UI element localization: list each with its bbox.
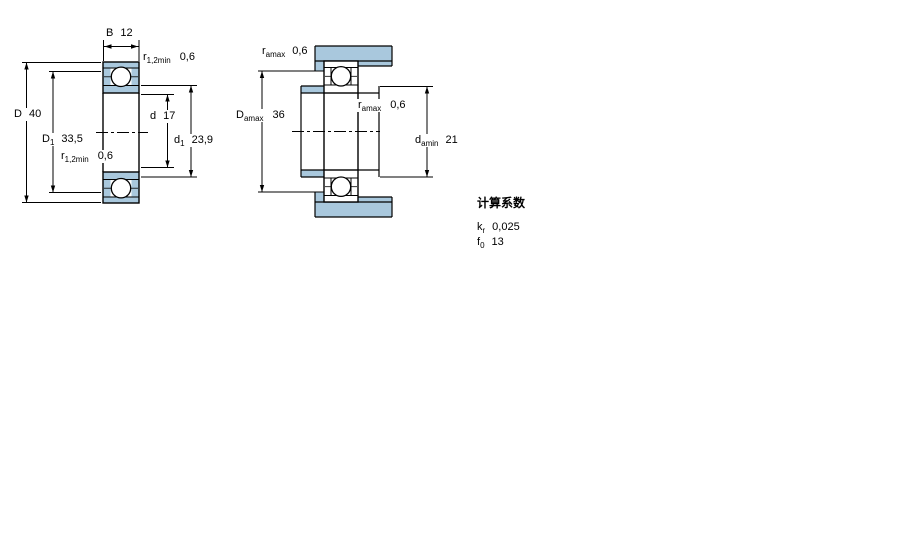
dim-label-housing-abutment-Damax: Damax36: [234, 109, 287, 122]
calculation-factors-title: 计算系数: [477, 194, 525, 211]
ball-top: [331, 67, 350, 86]
dim-value: 0,6: [390, 99, 405, 111]
factor-subscript: 0: [480, 241, 484, 250]
dim-value: 36: [273, 109, 285, 121]
dim-value: 0,6: [98, 150, 113, 162]
dim-subscript: 1: [50, 138, 54, 147]
dim-value: 33,5: [61, 133, 82, 145]
factor-value: 13: [492, 236, 504, 248]
factor-f0: f013: [477, 235, 525, 250]
bearing-cross-section: [96, 62, 148, 203]
dim-label-shaft-abutment-damin: damin21: [413, 134, 460, 147]
factor-value: 0,025: [492, 221, 520, 233]
dim-subscript: amax: [362, 104, 382, 113]
dim-value: 21: [445, 134, 457, 146]
dim-label-r12min-top: r1,2min0,6: [141, 51, 197, 64]
dim-subscript: 1,2min: [65, 155, 89, 164]
technical-drawing-linework: [0, 0, 900, 560]
dim-subscript: amax: [244, 114, 264, 123]
factor-symbol: k: [477, 221, 483, 233]
dim-label-recess-diameter-D1: D133,5: [40, 133, 85, 146]
dim-label-outer-diameter-D: D40: [12, 108, 43, 121]
dim-value: 17: [163, 110, 175, 122]
ball-bottom: [111, 179, 130, 198]
dim-label-shoulder-diameter-d1: d123,9: [172, 134, 215, 147]
dim-label-ramax-top: ramax0,6: [260, 45, 310, 58]
dim-value: 23,9: [192, 134, 213, 146]
dim-symbol: B: [106, 27, 113, 39]
dim-value: 0,6: [292, 45, 307, 57]
dim-subscript: amax: [266, 50, 286, 59]
dim-symbol: D: [14, 108, 22, 120]
dim-symbol: D: [42, 133, 50, 145]
ball-bottom: [331, 177, 350, 196]
dim-subscript: amin: [421, 139, 438, 148]
dim-value: 12: [120, 27, 132, 39]
ball-top: [111, 67, 130, 86]
bearing-datasheet-figure: B12 r1,2min0,6 D40 D133,5 r1,2min0,6 d17…: [0, 0, 900, 560]
dim-symbol: d: [150, 110, 156, 122]
dim-label-r12min-bottom: r1,2min0,6: [59, 150, 115, 163]
factor-subscript: r: [483, 226, 486, 235]
dim-value: 40: [29, 108, 41, 120]
dim-label-bore-diameter-d: d17: [148, 110, 177, 123]
dim-label-ramax-side: ramax0,6: [356, 99, 408, 112]
dim-symbol: D: [236, 109, 244, 121]
calculation-factors-block: 计算系数 kr0,025 f013: [477, 194, 525, 250]
dim-value: 0,6: [180, 51, 195, 63]
dim-label-width-B: B12: [104, 27, 135, 40]
dim-subscript: 1,2min: [147, 56, 171, 65]
factor-kr: kr0,025: [477, 220, 525, 235]
mounting-abutment-drawing: [292, 46, 392, 217]
dim-subscript: 1: [180, 139, 184, 148]
